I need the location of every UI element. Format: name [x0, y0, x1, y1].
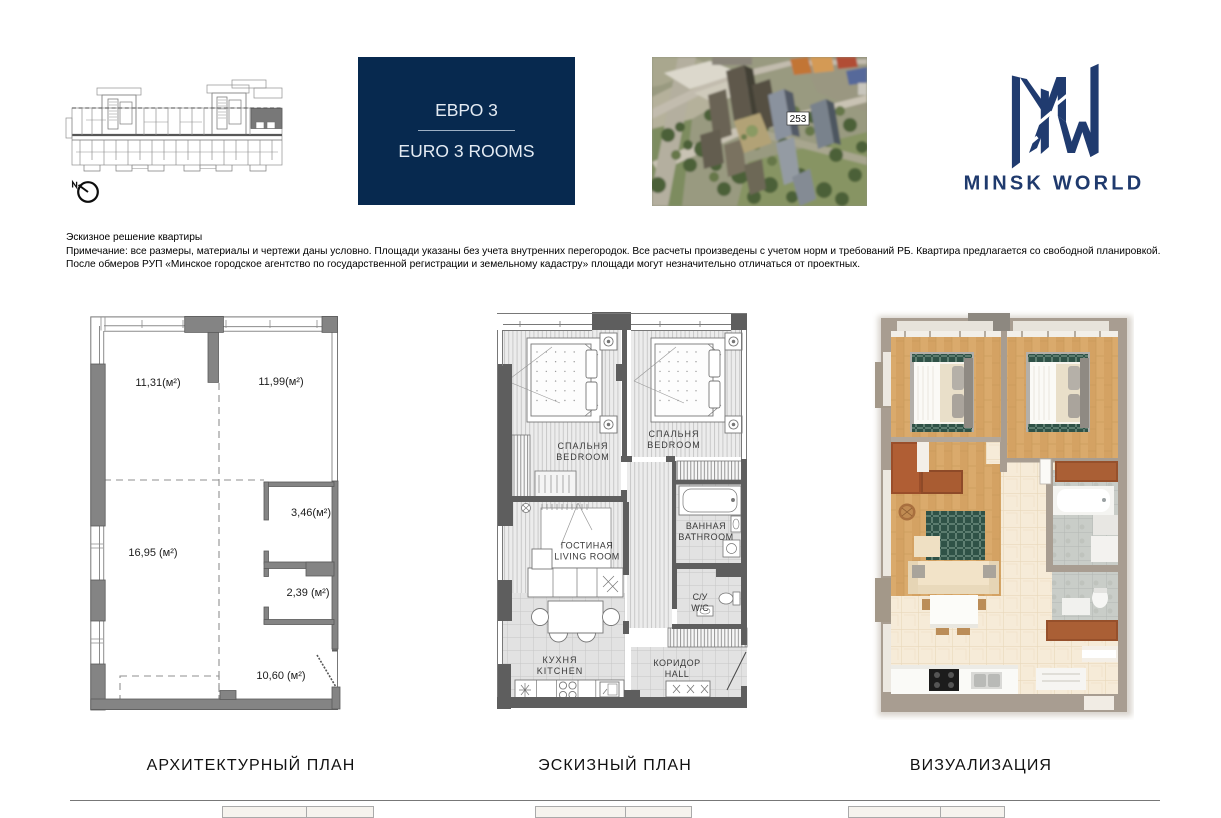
svg-text:KITCHEN: KITCHEN: [537, 666, 584, 676]
svg-text:ГОСТИНАЯ: ГОСТИНАЯ: [561, 541, 614, 551]
svg-text:HALL: HALL: [665, 669, 690, 679]
svg-text:10,60 (м²): 10,60 (м²): [256, 670, 305, 682]
svg-text:СПАЛЬНЯ: СПАЛЬНЯ: [558, 441, 609, 451]
svg-text:КОРИДОР: КОРИДОР: [653, 658, 700, 668]
svg-text:BATHROOM: BATHROOM: [678, 532, 733, 542]
svg-text:11,99(м²): 11,99(м²): [258, 376, 303, 388]
svg-text:BEDROOM: BEDROOM: [647, 440, 701, 450]
svg-text:LIVING ROOM: LIVING ROOM: [554, 552, 620, 562]
svg-text:16,95 (м²): 16,95 (м²): [128, 547, 177, 559]
svg-text:СПАЛЬНЯ: СПАЛЬНЯ: [649, 429, 700, 439]
svg-text:С/У: С/У: [693, 592, 708, 602]
svg-text:3,46(м²): 3,46(м²): [291, 507, 331, 519]
svg-text:W/C: W/C: [691, 603, 709, 613]
svg-text:11,31(м²): 11,31(м²): [135, 377, 180, 389]
svg-text:ВАННАЯ: ВАННАЯ: [686, 521, 726, 531]
svg-text:253: 253: [790, 114, 807, 125]
svg-text:КУХНЯ: КУХНЯ: [542, 655, 577, 665]
svg-text:2,39 (м²): 2,39 (м²): [286, 587, 329, 599]
svg-text:MINSK WORLD: MINSK WORLD: [964, 173, 1145, 194]
svg-text:BEDROOM: BEDROOM: [556, 452, 610, 462]
